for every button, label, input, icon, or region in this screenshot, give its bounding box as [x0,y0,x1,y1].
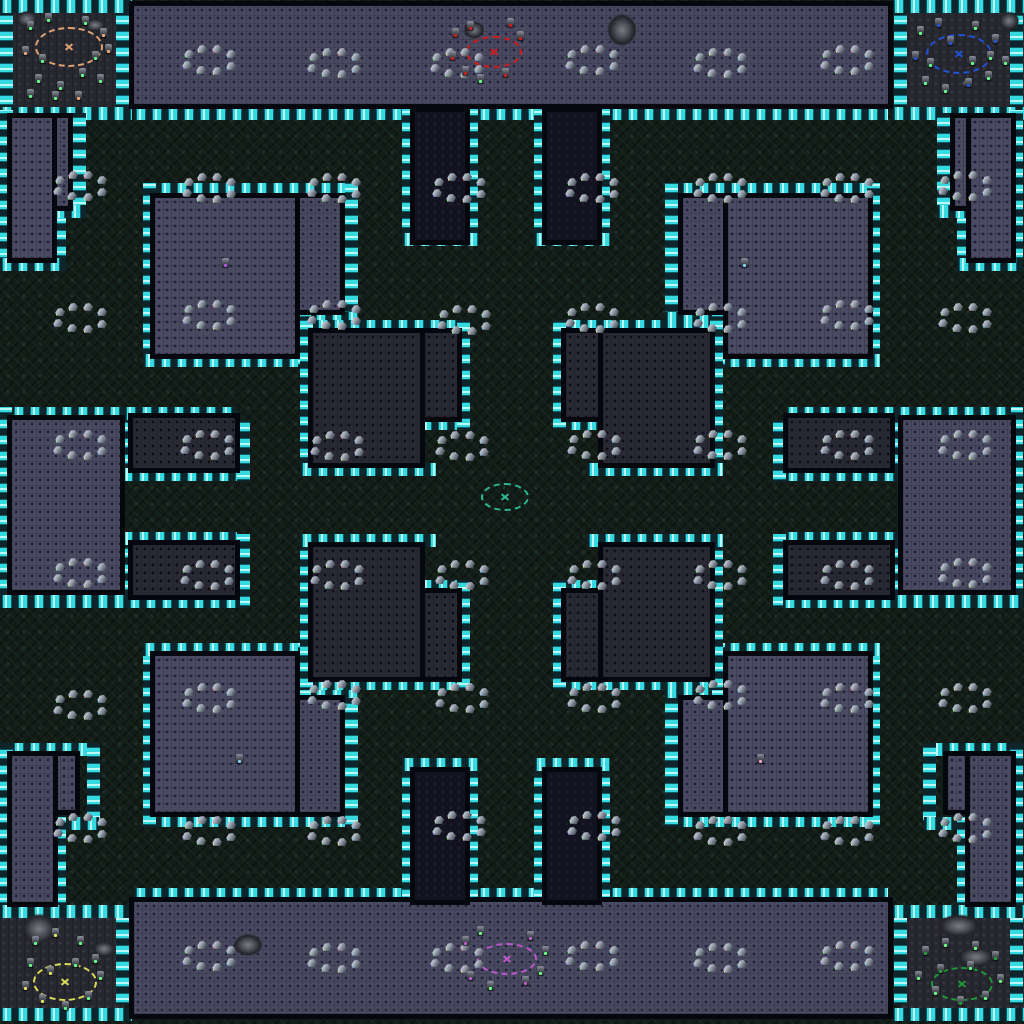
mineral-patch[interactable] [610,816,621,824]
mineral-patch[interactable] [849,322,860,330]
mineral-patch[interactable] [308,53,319,61]
mineral-patch[interactable] [736,190,747,198]
mineral-patch[interactable] [67,558,78,566]
mineral-patch[interactable] [350,697,361,705]
mineral-cluster[interactable] [179,684,235,716]
mineral-patch[interactable] [834,683,845,691]
mineral-patch[interactable] [981,435,992,443]
mineral-patch[interactable] [431,948,442,956]
mineral-patch[interactable] [594,195,605,203]
unit[interactable] [1002,56,1009,65]
mineral-patch[interactable] [821,821,832,829]
mineral-patch[interactable] [937,187,948,195]
unit[interactable] [462,936,469,945]
mineral-patch[interactable] [736,960,747,968]
unit[interactable] [467,971,474,980]
mineral-patch[interactable] [981,308,992,316]
mineral-patch[interactable] [967,193,978,201]
mineral-patch[interactable] [443,964,454,972]
mineral-patch[interactable] [967,558,978,566]
mineral-patch[interactable] [939,688,950,696]
mineral-cluster[interactable] [817,942,873,974]
mineral-patch[interactable] [819,189,830,197]
mineral-cluster[interactable] [179,46,235,78]
mineral-cluster[interactable] [50,304,106,336]
unit[interactable] [32,936,39,945]
mineral-patch[interactable] [54,308,65,316]
mineral-patch[interactable] [596,452,607,460]
mineral-patch[interactable] [581,560,592,568]
mineral-patch[interactable] [183,178,194,186]
mineral-patch[interactable] [952,558,963,566]
mineral-patch[interactable] [951,451,962,459]
mineral-patch[interactable] [981,176,992,184]
wreck-doodad[interactable] [995,8,1023,34]
mineral-patch[interactable] [849,300,860,308]
mineral-patch[interactable] [308,305,319,313]
mineral-cluster[interactable] [817,817,873,849]
mineral-patch[interactable] [323,581,334,589]
mineral-patch[interactable] [336,965,347,973]
mineral-patch[interactable] [849,560,860,568]
mineral-patch[interactable] [736,685,747,693]
mineral-cluster[interactable] [564,812,620,844]
mineral-patch[interactable] [475,190,486,198]
mineral-patch[interactable] [475,178,486,186]
mineral-patch[interactable] [350,685,361,693]
mineral-patch[interactable] [580,704,591,712]
mineral-patch[interactable] [580,451,591,459]
mineral-cluster[interactable] [427,944,483,976]
mineral-patch[interactable] [849,452,860,460]
mineral-patch[interactable] [223,447,234,455]
mineral-patch[interactable] [863,447,874,455]
unit[interactable] [47,966,54,975]
mineral-patch[interactable] [568,816,579,824]
mineral-patch[interactable] [82,558,93,566]
mineral-patch[interactable] [195,704,206,712]
mineral-patch[interactable] [196,45,207,53]
mineral-patch[interactable] [320,321,331,329]
mineral-patch[interactable] [193,451,204,459]
mineral-patch[interactable] [833,704,844,712]
mineral-patch[interactable] [610,828,621,836]
mineral-patch[interactable] [480,310,491,318]
mineral-patch[interactable] [353,577,364,585]
mineral-patch[interactable] [834,173,845,181]
mineral-patch[interactable] [564,61,575,69]
mineral-patch[interactable] [610,435,621,443]
mineral-patch[interactable] [722,325,733,333]
mineral-patch[interactable] [706,69,717,77]
mineral-patch[interactable] [52,706,63,714]
mineral-cluster[interactable] [690,174,746,206]
mineral-patch[interactable] [211,45,222,53]
mineral-patch[interactable] [181,435,192,443]
unit[interactable] [537,966,544,975]
mineral-patch[interactable] [323,452,334,460]
mineral-patch[interactable] [336,300,347,308]
mineral-patch[interactable] [736,53,747,61]
mineral-patch[interactable] [82,580,93,588]
mineral-patch[interactable] [863,317,874,325]
mineral-cluster[interactable] [817,174,873,206]
mineral-patch[interactable] [981,700,992,708]
mineral-patch[interactable] [736,833,747,841]
mineral-patch[interactable] [308,685,319,693]
mineral-patch[interactable] [736,308,747,316]
mineral-patch[interactable] [833,194,844,202]
mineral-patch[interactable] [434,576,445,584]
mineral-patch[interactable] [459,48,470,56]
mineral-patch[interactable] [336,173,347,181]
mineral-patch[interactable] [566,576,577,584]
mineral-patch[interactable] [863,435,874,443]
mineral-patch[interactable] [594,941,605,949]
unit[interactable] [997,974,1004,983]
unit[interactable] [85,991,92,1000]
mineral-patch[interactable] [707,173,718,181]
mineral-cluster[interactable] [177,561,233,593]
mineral-patch[interactable] [478,448,489,456]
mineral-patch[interactable] [306,959,317,967]
mineral-patch[interactable] [833,66,844,74]
mineral-patch[interactable] [564,957,575,965]
unit[interactable] [92,51,99,60]
mineral-patch[interactable] [211,322,222,330]
mineral-patch[interactable] [67,690,78,698]
unit[interactable] [467,21,474,30]
mineral-patch[interactable] [819,957,830,965]
mineral-patch[interactable] [96,308,107,316]
mineral-patch[interactable] [834,941,845,949]
unit[interactable] [222,258,229,267]
mineral-patch[interactable] [436,565,447,573]
unit[interactable] [741,258,748,267]
mineral-patch[interactable] [849,683,860,691]
mineral-patch[interactable] [967,171,978,179]
mineral-patch[interactable] [54,695,65,703]
mineral-patch[interactable] [951,324,962,332]
mineral-patch[interactable] [863,700,874,708]
mineral-patch[interactable] [451,305,462,313]
unit[interactable] [969,56,976,65]
mineral-patch[interactable] [475,816,486,824]
unit[interactable] [477,926,484,935]
mineral-patch[interactable] [96,447,107,455]
mineral-patch[interactable] [67,813,78,821]
mineral-patch[interactable] [692,696,703,704]
mineral-patch[interactable] [736,447,747,455]
mineral-patch[interactable] [951,834,962,842]
mineral-patch[interactable] [464,453,475,461]
mineral-patch[interactable] [209,560,220,568]
unit[interactable] [915,971,922,980]
mineral-patch[interactable] [967,430,978,438]
mineral-cluster[interactable] [817,684,873,716]
mineral-patch[interactable] [596,705,607,713]
mineral-patch[interactable] [461,195,472,203]
mineral-cluster[interactable] [307,432,363,464]
mineral-patch[interactable] [446,811,457,819]
mineral-patch[interactable] [478,700,489,708]
mineral-patch[interactable] [350,948,361,956]
mineral-patch[interactable] [596,833,607,841]
mineral-cluster[interactable] [429,812,485,844]
mineral-patch[interactable] [863,688,874,696]
mineral-patch[interactable] [211,300,222,308]
unit[interactable] [922,946,929,955]
mineral-patch[interactable] [849,173,860,181]
mineral-cluster[interactable] [432,684,488,716]
mineral-patch[interactable] [434,699,445,707]
mineral-patch[interactable] [579,45,590,53]
mineral-cluster[interactable] [690,561,746,593]
mineral-patch[interactable] [96,707,107,715]
mineral-patch[interactable] [350,305,361,313]
mineral-patch[interactable] [461,811,472,819]
mineral-patch[interactable] [82,690,93,698]
mineral-patch[interactable] [736,565,747,573]
mineral-patch[interactable] [580,832,591,840]
mineral-cluster[interactable] [304,817,360,849]
unit[interactable] [477,74,484,83]
mineral-patch[interactable] [306,832,317,840]
mineral-patch[interactable] [706,837,717,845]
mineral-patch[interactable] [694,685,705,693]
mineral-patch[interactable] [821,305,832,313]
mineral-patch[interactable] [211,705,222,713]
mineral-patch[interactable] [66,579,77,587]
mineral-patch[interactable] [52,446,63,454]
mineral-patch[interactable] [446,173,457,181]
mineral-patch[interactable] [211,838,222,846]
mineral-patch[interactable] [833,451,844,459]
unit[interactable] [449,51,456,60]
mineral-patch[interactable] [579,173,590,181]
mineral-patch[interactable] [596,683,607,691]
mineral-patch[interactable] [596,582,607,590]
mineral-cluster[interactable] [935,172,991,204]
mineral-patch[interactable] [967,452,978,460]
mineral-patch[interactable] [821,435,832,443]
mineral-cluster[interactable] [304,49,360,81]
mineral-patch[interactable] [96,695,107,703]
mineral-patch[interactable] [223,435,234,443]
mineral-patch[interactable] [707,680,718,688]
mineral-patch[interactable] [694,948,705,956]
mineral-patch[interactable] [581,430,592,438]
unit[interactable] [502,68,509,77]
mineral-cluster[interactable] [935,431,991,463]
mineral-patch[interactable] [54,563,65,571]
mineral-patch[interactable] [211,195,222,203]
mineral-patch[interactable] [211,941,222,949]
mineral-patch[interactable] [594,173,605,181]
start-location-teal[interactable] [481,483,529,511]
unit[interactable] [62,1001,69,1010]
mineral-patch[interactable] [464,582,475,590]
mineral-patch[interactable] [464,431,475,439]
mineral-patch[interactable] [568,435,579,443]
mineral-patch[interactable] [96,575,107,583]
mineral-patch[interactable] [66,711,77,719]
mineral-patch[interactable] [834,300,845,308]
mineral-patch[interactable] [353,565,364,573]
mineral-patch[interactable] [96,830,107,838]
mineral-patch[interactable] [464,683,475,691]
mineral-cluster[interactable] [690,49,746,81]
mineral-patch[interactable] [195,962,206,970]
mineral-patch[interactable] [196,816,207,824]
mineral-patch[interactable] [179,576,190,584]
mineral-patch[interactable] [849,963,860,971]
mineral-patch[interactable] [594,325,605,333]
start-location-blue[interactable] [926,34,992,74]
mineral-patch[interactable] [694,53,705,61]
mineral-patch[interactable] [82,452,93,460]
mineral-patch[interactable] [594,303,605,311]
mineral-patch[interactable] [54,176,65,184]
mineral-patch[interactable] [863,178,874,186]
mineral-patch[interactable] [196,300,207,308]
mineral-patch[interactable] [320,701,331,709]
mineral-patch[interactable] [819,316,830,324]
mineral-patch[interactable] [736,577,747,585]
mineral-patch[interactable] [225,178,236,186]
mineral-patch[interactable] [96,563,107,571]
mineral-patch[interactable] [981,320,992,328]
unit[interactable] [932,986,939,995]
mineral-patch[interactable] [952,171,963,179]
mineral-patch[interactable] [952,813,963,821]
mineral-patch[interactable] [967,303,978,311]
mineral-patch[interactable] [181,565,192,573]
mineral-cluster[interactable] [177,431,233,463]
mineral-cluster[interactable] [304,944,360,976]
mineral-patch[interactable] [849,430,860,438]
mineral-patch[interactable] [736,948,747,956]
unit[interactable] [462,66,469,75]
mineral-patch[interactable] [82,712,93,720]
start-location-purple[interactable] [477,943,537,975]
mineral-patch[interactable] [722,70,733,78]
mineral-patch[interactable] [449,560,460,568]
mineral-patch[interactable] [183,946,194,954]
mineral-patch[interactable] [967,705,978,713]
mineral-patch[interactable] [436,688,447,696]
mineral-patch[interactable] [211,683,222,691]
mineral-cluster[interactable] [562,304,618,336]
mineral-patch[interactable] [863,958,874,966]
mineral-patch[interactable] [321,943,332,951]
mineral-patch[interactable] [834,816,845,824]
mineral-patch[interactable] [967,683,978,691]
unit[interactable] [542,946,549,955]
mineral-patch[interactable] [225,305,236,313]
mineral-patch[interactable] [951,192,962,200]
mineral-cluster[interactable] [817,301,873,333]
mineral-patch[interactable] [445,832,456,840]
mineral-cluster[interactable] [50,172,106,204]
mineral-patch[interactable] [339,431,350,439]
mineral-patch[interactable] [937,699,948,707]
mineral-patch[interactable] [324,560,335,568]
mineral-patch[interactable] [311,565,322,573]
mineral-cluster[interactable] [817,561,873,593]
mineral-patch[interactable] [692,576,703,584]
mineral-patch[interactable] [66,451,77,459]
mineral-patch[interactable] [448,581,459,589]
mineral-patch[interactable] [195,837,206,845]
mineral-patch[interactable] [706,451,717,459]
mineral-patch[interactable] [225,821,236,829]
unit[interactable] [982,991,989,1000]
mineral-patch[interactable] [181,832,192,840]
mineral-patch[interactable] [821,178,832,186]
mineral-patch[interactable] [967,325,978,333]
mineral-patch[interactable] [596,560,607,568]
mineral-patch[interactable] [608,958,619,966]
mineral-patch[interactable] [181,61,192,69]
unit[interactable] [922,76,929,85]
unit[interactable] [942,84,949,93]
mineral-patch[interactable] [209,582,220,590]
unit[interactable] [912,51,919,60]
mineral-patch[interactable] [952,430,963,438]
mineral-patch[interactable] [692,832,703,840]
mineral-patch[interactable] [564,189,575,197]
mineral-patch[interactable] [952,683,963,691]
mineral-patch[interactable] [706,324,717,332]
mineral-patch[interactable] [306,64,317,72]
mineral-patch[interactable] [433,178,444,186]
mineral-cluster[interactable] [432,432,488,464]
mineral-patch[interactable] [308,948,319,956]
mineral-patch[interactable] [939,818,950,826]
mineral-patch[interactable] [434,447,445,455]
mineral-patch[interactable] [473,960,484,968]
mineral-patch[interactable] [849,45,860,53]
mineral-patch[interactable] [707,430,718,438]
mineral-cluster[interactable] [434,306,490,338]
mineral-patch[interactable] [694,178,705,186]
mineral-patch[interactable] [431,53,442,61]
mineral-patch[interactable] [707,560,718,568]
mineral-patch[interactable] [225,833,236,841]
mineral-patch[interactable] [981,575,992,583]
mineral-patch[interactable] [937,574,948,582]
mineral-cluster[interactable] [564,431,620,463]
mineral-patch[interactable] [833,581,844,589]
mineral-patch[interactable] [431,827,442,835]
mineral-patch[interactable] [707,943,718,951]
mineral-patch[interactable] [350,833,361,841]
mineral-patch[interactable] [225,62,236,70]
mineral-patch[interactable] [475,828,486,836]
mineral-patch[interactable] [849,67,860,75]
mineral-cluster[interactable] [50,431,106,463]
unit[interactable] [39,994,46,1003]
mineral-patch[interactable] [594,963,605,971]
mineral-patch[interactable] [952,303,963,311]
mineral-cluster[interactable] [935,814,991,846]
mineral-patch[interactable] [350,821,361,829]
mineral-patch[interactable] [478,436,489,444]
mineral-patch[interactable] [692,446,703,454]
mineral-patch[interactable] [473,53,484,61]
mineral-patch[interactable] [863,946,874,954]
